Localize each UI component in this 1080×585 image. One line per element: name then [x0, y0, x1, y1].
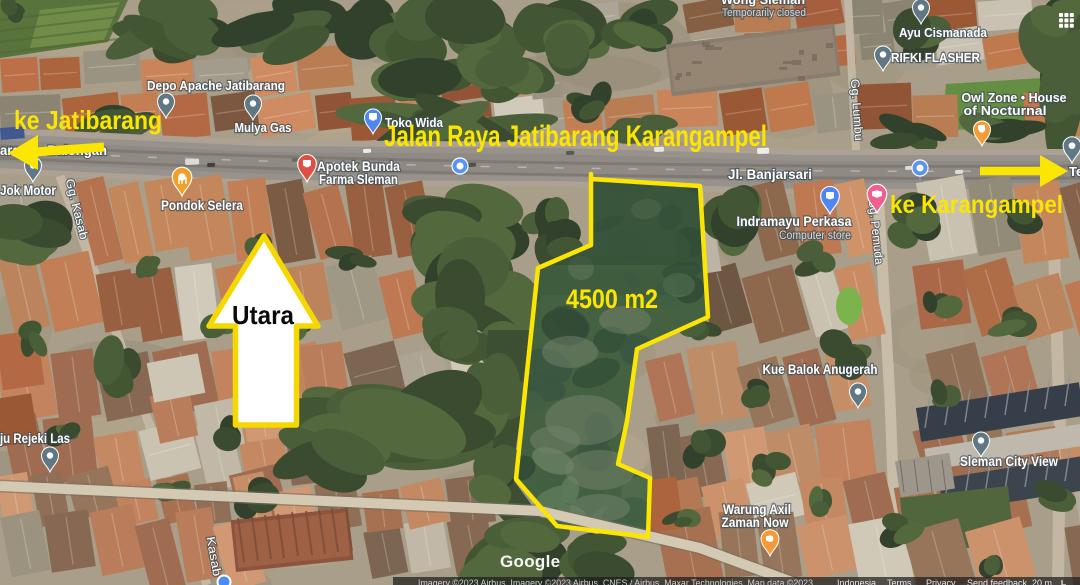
svg-text:of Nocturnal: of Nocturnal [964, 103, 1047, 118]
svg-text:Te: Te [1069, 164, 1080, 179]
svg-text:Utara: Utara [232, 300, 294, 330]
svg-text:ke Karangampel: ke Karangampel [890, 191, 1063, 219]
svg-text:ju Rejeki Las: ju Rejeki Las [0, 431, 70, 446]
svg-text:Wong Sleman: Wong Sleman [721, 0, 805, 7]
svg-text:Sleman City View: Sleman City View [960, 454, 1058, 469]
svg-text:Temporarily closed: Temporarily closed [722, 7, 806, 19]
svg-text:Send feedback: Send feedback [967, 578, 1028, 585]
svg-text:20 m: 20 m [1032, 578, 1052, 585]
svg-text:Ayu Cismanada: Ayu Cismanada [899, 25, 988, 40]
svg-text:Mulya Gas: Mulya Gas [235, 120, 292, 135]
svg-text:Farma Sleman: Farma Sleman [319, 172, 398, 187]
svg-text:Computer store: Computer store [779, 230, 851, 242]
svg-text:Pondok Selera: Pondok Selera [161, 198, 243, 213]
svg-text:RIFKI FLASHER: RIFKI FLASHER [891, 50, 981, 65]
svg-text:Zaman Now: Zaman Now [722, 515, 789, 530]
svg-text:Depo Apache Jatibarang: Depo Apache Jatibarang [147, 78, 285, 93]
svg-text:Kue Balok Anugerah: Kue Balok Anugerah [763, 362, 878, 377]
svg-text:Imagery ©2023 Airbus, Imagery: Imagery ©2023 Airbus, Imagery ©2023 Airb… [418, 578, 813, 585]
svg-text:Indramayu Perkasa: Indramayu Perkasa [737, 214, 852, 229]
svg-text:Terms: Terms [887, 578, 912, 585]
svg-text:Jl. Banjarsari: Jl. Banjarsari [728, 167, 812, 182]
svg-text:4500 m2: 4500 m2 [566, 284, 658, 314]
svg-text:Jalan Raya Jatibarang Karangam: Jalan Raya Jatibarang Karangampel [384, 120, 767, 153]
svg-text:Jok Motor: Jok Motor [0, 183, 57, 198]
svg-text:ke Jatibarang: ke Jatibarang [14, 105, 162, 135]
svg-text:Indonesia: Indonesia [837, 578, 876, 585]
svg-text:Privacy: Privacy [926, 578, 956, 585]
svg-text:Google: Google [500, 552, 560, 571]
